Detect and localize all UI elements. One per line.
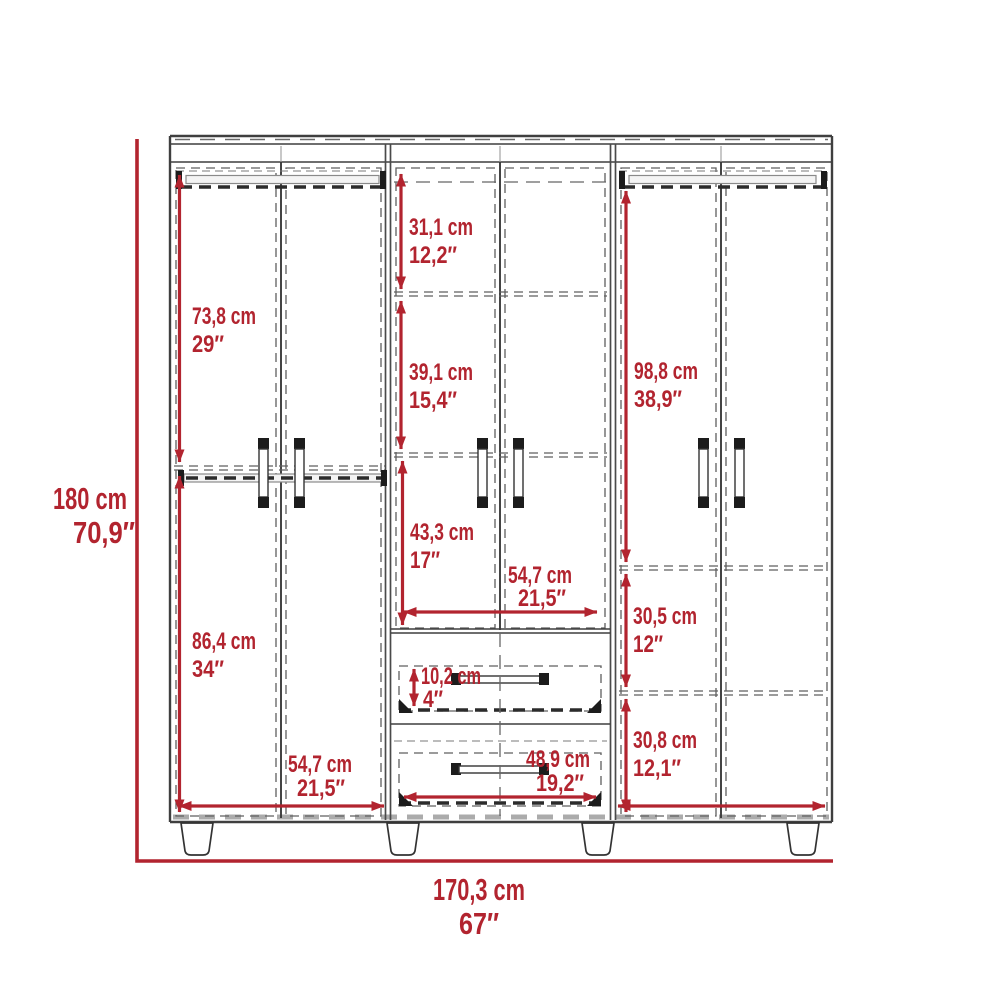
dim-left-upper-in: 29″: [192, 331, 224, 358]
dim-center-mid-in: 15,4″: [409, 387, 457, 414]
wardrobe-dimension-diagram-page: 73,8 cm 29″ 86,4 cm 34″ 31,1 cm 12,2″ 39…: [0, 0, 1000, 1000]
wardrobe-dimension-diagram: 73,8 cm 29″ 86,4 cm 34″ 31,1 cm 12,2″ 39…: [0, 0, 1000, 1000]
dim-center-width-in: 21,5″: [518, 585, 566, 612]
dim-right-upper-in: 38,9″: [634, 386, 682, 413]
dim-total-width-cm: 170,3 cm: [433, 872, 525, 907]
dim-left-lower-in: 34″: [192, 656, 224, 683]
dim-center-lower-in: 17″: [410, 547, 440, 574]
door-split-lines: [281, 162, 721, 818]
dim-center-top-cm: 31,1 cm: [409, 214, 473, 241]
dim-total-height-in: 70,9″: [73, 515, 135, 550]
dim-right-gap-upper-cm: 30,5 cm: [633, 603, 697, 630]
dim-drawer-width-cm: 48,9 cm: [526, 746, 590, 773]
legs: [181, 823, 819, 855]
dim-left-upper-cm: 73,8 cm: [192, 303, 256, 330]
dim-left-width-cm: 54,7 cm: [288, 751, 352, 778]
hanging-rod-right-top: [619, 171, 827, 189]
dim-right-gap-upper-in: 12″: [633, 631, 663, 658]
dim-right-gap-lower-cm: 30,8 cm: [633, 727, 697, 754]
dim-total-height-cm: 180 cm: [53, 481, 127, 516]
dim-center-lower-cm: 43,3 cm: [410, 519, 474, 546]
dim-center-mid-cm: 39,1 cm: [409, 359, 473, 386]
dim-drawer-width-in: 19,2″: [536, 770, 584, 797]
dim-right-upper-cm: 98,8 cm: [634, 358, 698, 385]
dim-center-top-in: 12,2″: [409, 242, 457, 269]
dim-left-width-in: 21,5″: [297, 775, 345, 802]
door-edges: [176, 168, 827, 816]
dim-drawer-height-in: 4″: [423, 686, 443, 713]
drawer-top-panel: [391, 629, 611, 633]
dim-right-gap-lower-in: 12,1″: [633, 755, 681, 782]
dim-total-width-in: 67″: [459, 906, 499, 941]
dim-left-lower-cm: 86,4 cm: [192, 628, 256, 655]
